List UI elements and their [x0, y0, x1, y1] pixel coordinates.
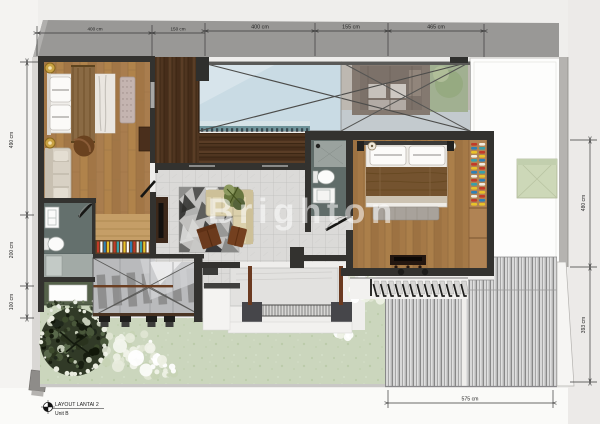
svg-text:490 cm: 490 cm	[9, 132, 15, 148]
svg-text:575 cm: 575 cm	[461, 397, 478, 403]
svg-text:150 cm: 150 cm	[170, 27, 185, 32]
svg-text:480 cm: 480 cm	[581, 195, 587, 211]
svg-text:400 cm: 400 cm	[251, 25, 269, 31]
svg-text:LAYOUT LANTAI 2: LAYOUT LANTAI 2	[55, 402, 99, 408]
svg-text:465 cm: 465 cm	[427, 25, 445, 31]
svg-text:393 cm: 393 cm	[581, 317, 587, 333]
svg-text:100 cm: 100 cm	[9, 294, 15, 310]
svg-text:Unit B: Unit B	[55, 411, 69, 417]
svg-text:Brighton: Brighton	[208, 192, 398, 231]
svg-text:155 cm: 155 cm	[342, 25, 360, 31]
svg-text:400 cm: 400 cm	[87, 27, 102, 32]
svg-text:200 cm: 200 cm	[9, 242, 15, 258]
